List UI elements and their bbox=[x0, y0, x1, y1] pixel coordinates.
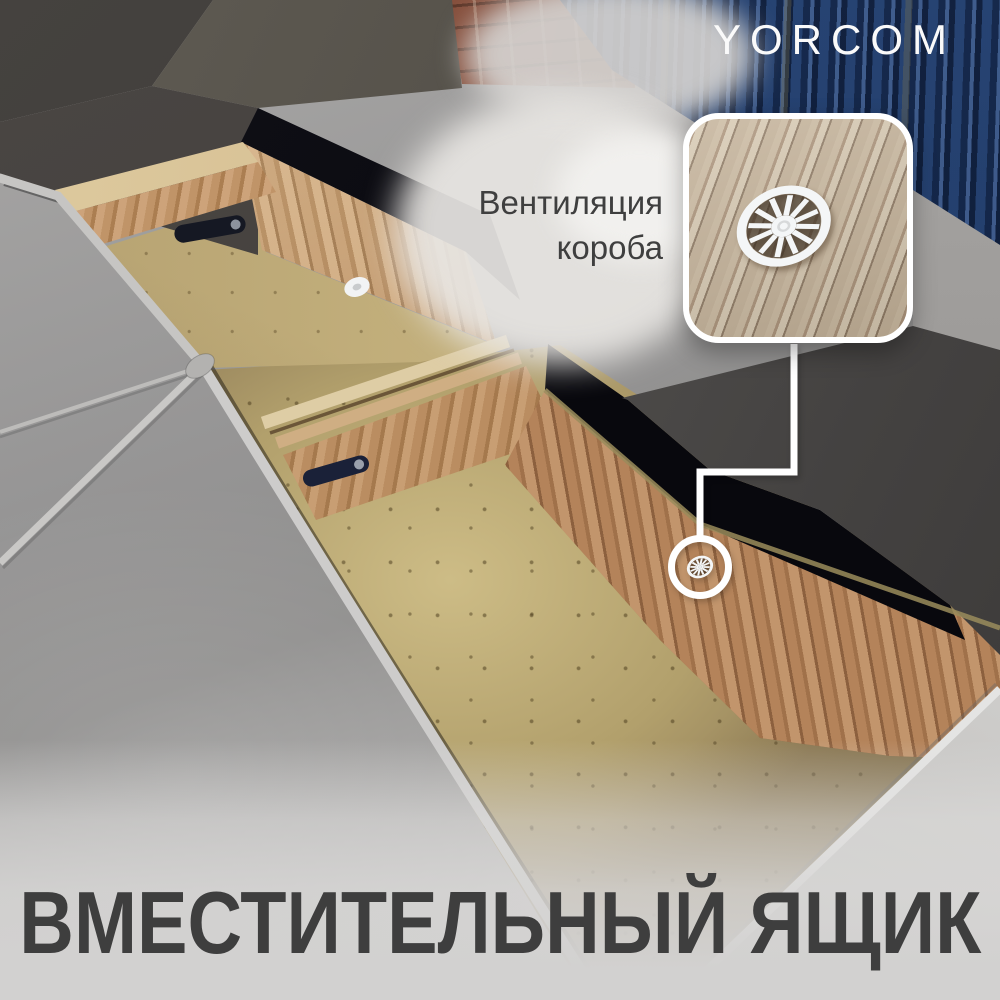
callout-label: Вентиляция короба bbox=[479, 180, 663, 270]
headline: ВМЕСТИТЕЛЬНЫЙ ЯЩИК bbox=[19, 872, 981, 974]
product-marketing-image: YORCOM Вентиляция короба ВМЕСТИТЕЛЬНЫЙ Я… bbox=[0, 0, 1000, 1000]
callout-zoom-panel bbox=[683, 113, 913, 343]
ventilation-grommet-icon bbox=[689, 119, 907, 337]
headline-band: ВМЕСТИТЕЛЬНЫЙ ЯЩИК bbox=[0, 872, 1000, 974]
callout-label-line2: короба bbox=[479, 225, 663, 270]
brand-logo: YORCOM bbox=[713, 16, 956, 64]
connector-line bbox=[700, 344, 794, 539]
callout-label-line1: Вентиляция bbox=[479, 180, 663, 225]
vent-grommet-near-icon bbox=[685, 553, 715, 580]
